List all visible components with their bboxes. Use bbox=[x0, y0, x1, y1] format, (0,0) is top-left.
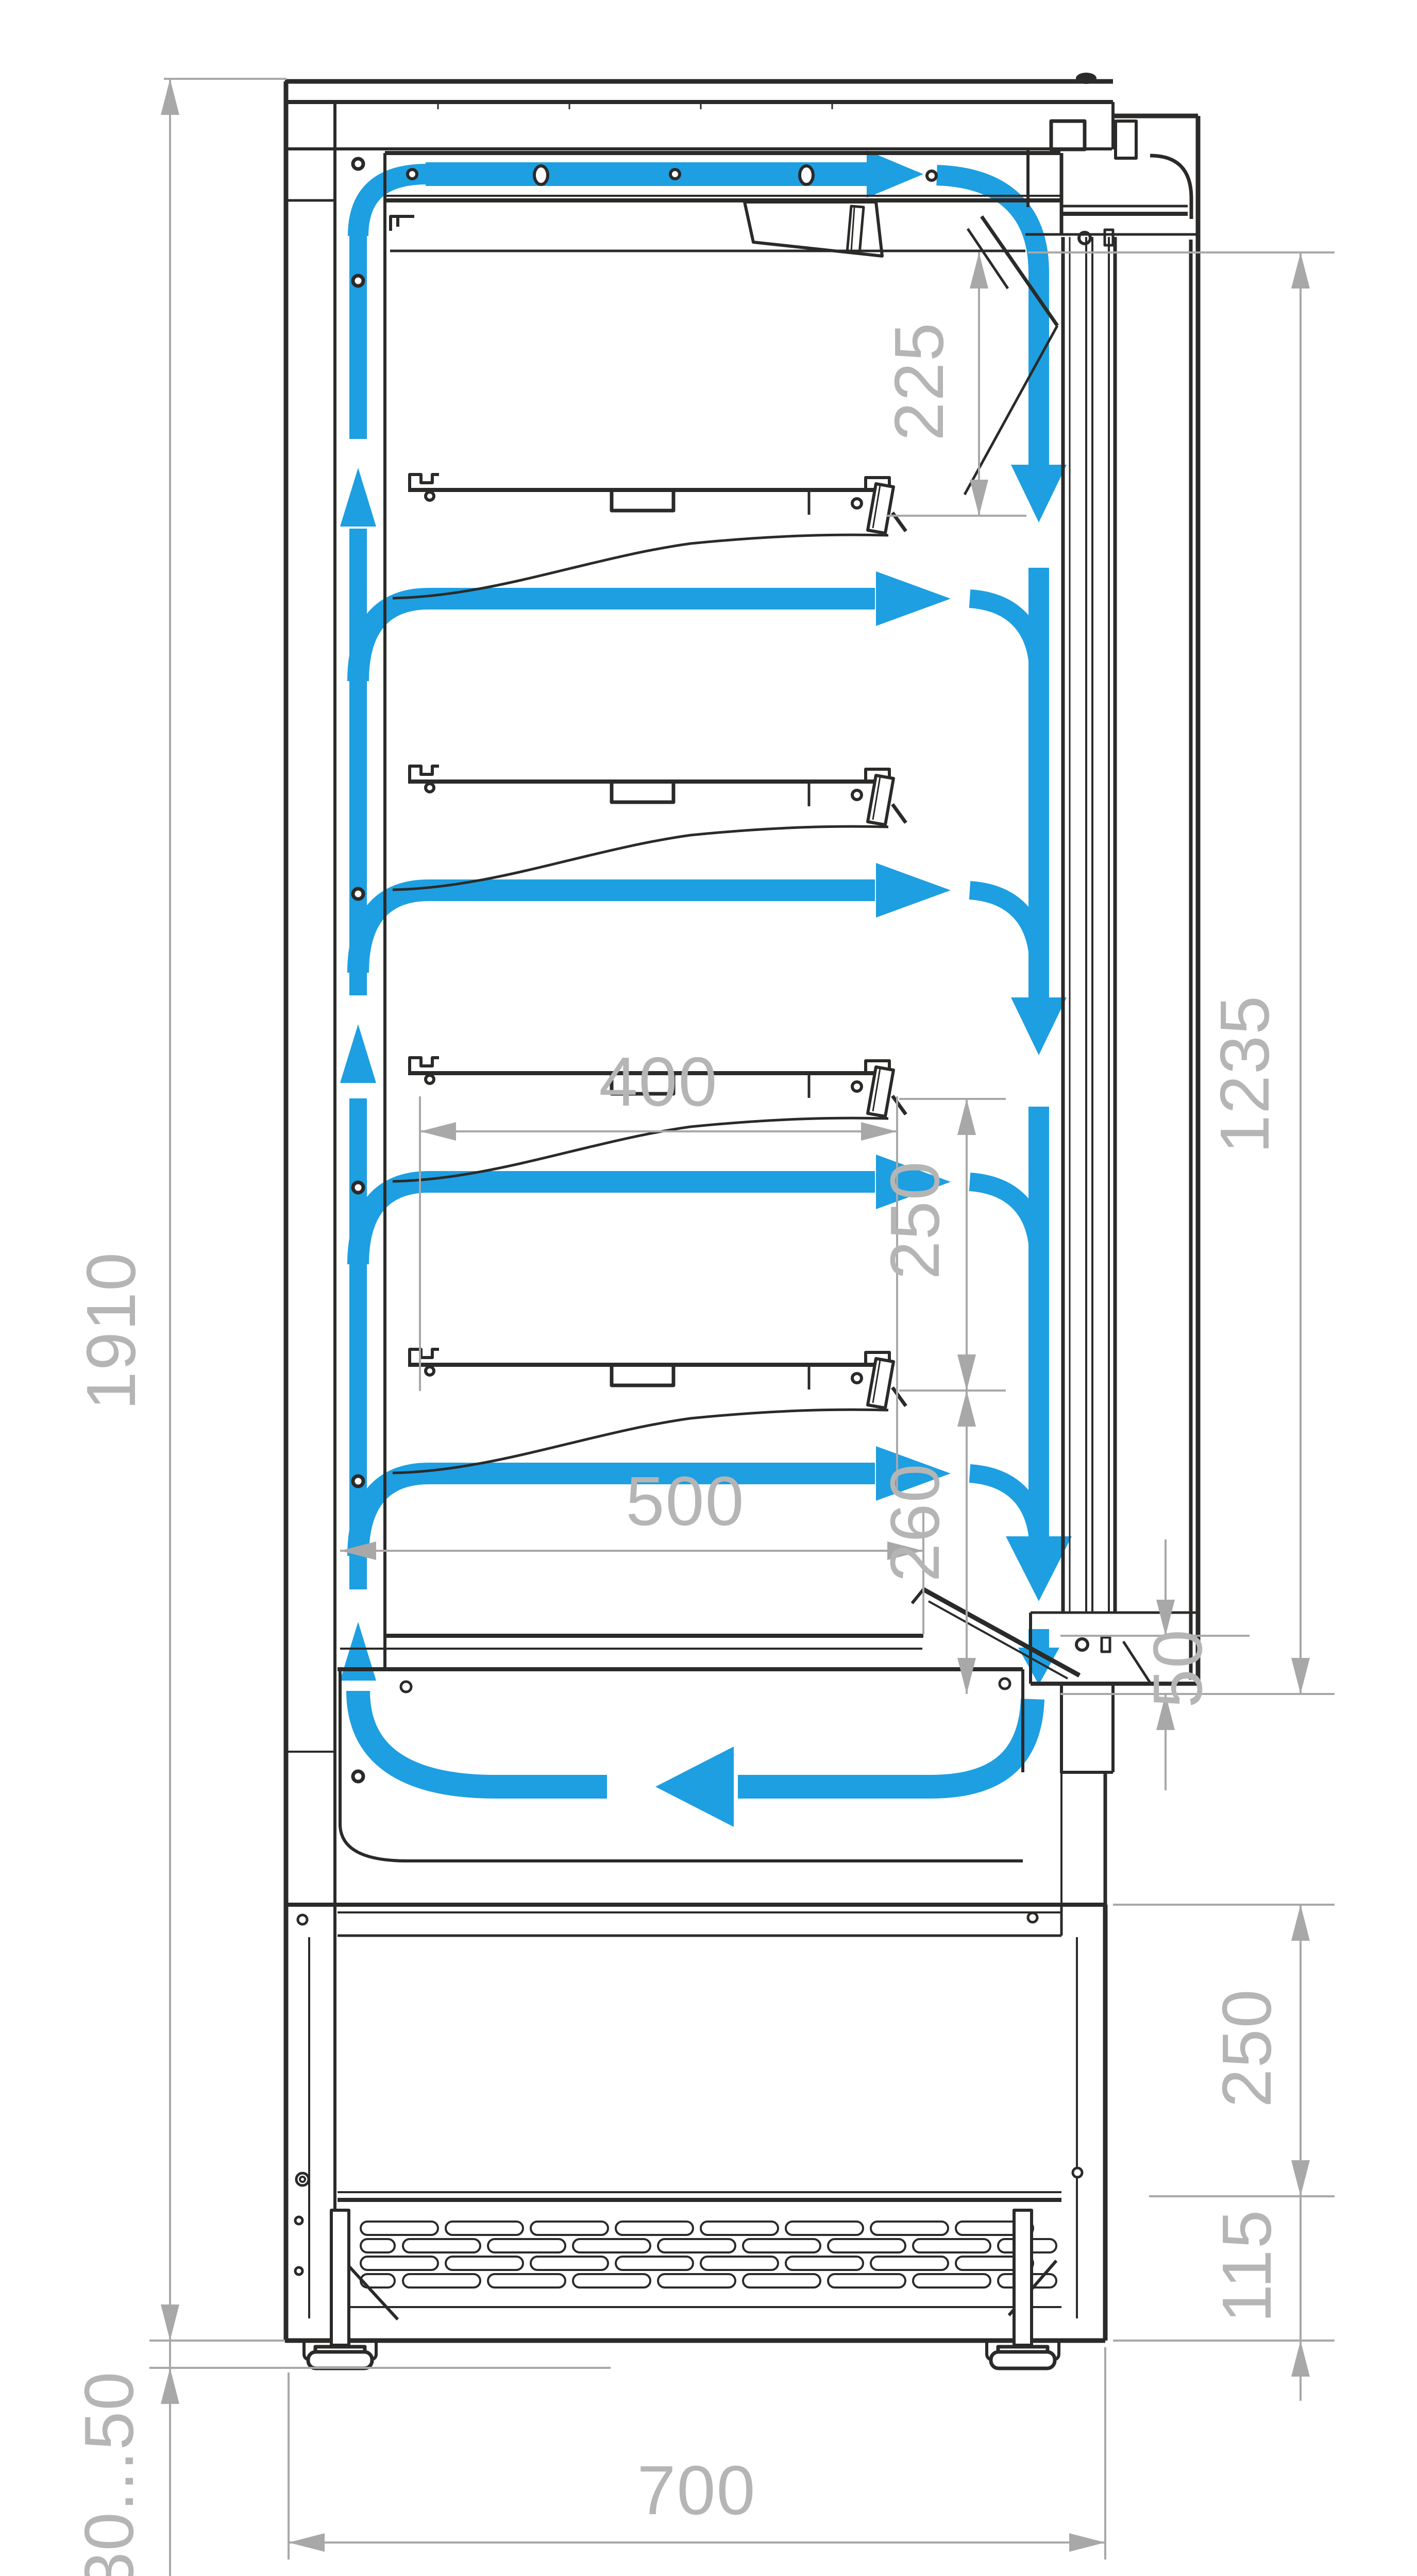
vent-louvers bbox=[361, 2222, 1033, 2235]
airflow-up-arrow bbox=[340, 1622, 376, 1681]
dim-label-overall-height: 1910 bbox=[72, 1251, 150, 1410]
dim-label-vent-height: 115 bbox=[1208, 2209, 1286, 2323]
bottom-deck bbox=[338, 1589, 1113, 1905]
dim-label-door-glass-height: 1235 bbox=[1206, 995, 1284, 1154]
airflow-up-arrow bbox=[340, 1024, 376, 1083]
return-air-flap bbox=[923, 1589, 1079, 1675]
dim-label-shelf-depth: 400 bbox=[599, 1043, 718, 1121]
dim-label-shelf-spacing: 250 bbox=[876, 1160, 954, 1279]
machine-base bbox=[285, 1905, 1105, 2368]
dim-label-air-intake-gap: 50 bbox=[1139, 1629, 1217, 1708]
dim-label-shelf-to-deck: 260 bbox=[876, 1463, 954, 1582]
airflow-right-arrow bbox=[867, 150, 923, 198]
glass-door bbox=[1063, 234, 1198, 1684]
airflow-path bbox=[340, 150, 1072, 1827]
shelf-2 bbox=[393, 766, 906, 890]
dim-label-overall-depth: 700 bbox=[637, 2451, 756, 2529]
airflow-down-arrow bbox=[1011, 465, 1067, 522]
door-hinge-pin bbox=[1076, 73, 1097, 84]
dim-label-canopy-to-shelf1: 225 bbox=[880, 321, 958, 440]
airflow-down-arrow bbox=[1011, 997, 1067, 1055]
dim-label-base-height: 250 bbox=[1208, 1988, 1286, 2107]
airflow-up-arrow bbox=[340, 468, 376, 527]
cabinet-structure bbox=[285, 73, 1198, 2368]
airflow-left-arrow bbox=[655, 1747, 734, 1827]
shelf-4 bbox=[393, 1349, 906, 1473]
dim-label-deck-depth: 500 bbox=[626, 1462, 745, 1540]
dim-label-foot-range: 30...50 bbox=[70, 2371, 148, 2576]
cabinet-cross-section-diagram: 1910 30...50 225 1235 250 260 400 500 50… bbox=[0, 0, 1417, 2576]
shelf-1 bbox=[393, 474, 906, 598]
liner-hook bbox=[391, 216, 414, 231]
light-baffle bbox=[745, 202, 882, 256]
